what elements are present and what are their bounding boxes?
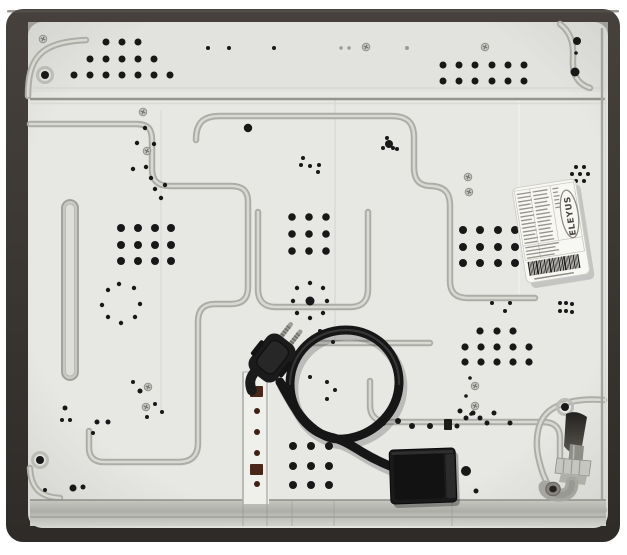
vents-center-grid-upper xyxy=(288,213,330,255)
junction-box-latch xyxy=(445,454,456,498)
junction-box xyxy=(389,448,460,508)
gas-fitting-hex-nut xyxy=(555,458,591,476)
frame-top-highlight xyxy=(7,10,619,13)
left-vent-slot xyxy=(62,200,78,380)
bottom-flange xyxy=(30,500,606,526)
panel-seam xyxy=(160,110,162,410)
photo-stage: ELEYUS xyxy=(0,0,627,555)
punched-slot-hole xyxy=(250,464,263,475)
punched-slot-hole xyxy=(444,419,452,430)
cooktop-underside-photo: ELEYUS xyxy=(0,0,627,555)
